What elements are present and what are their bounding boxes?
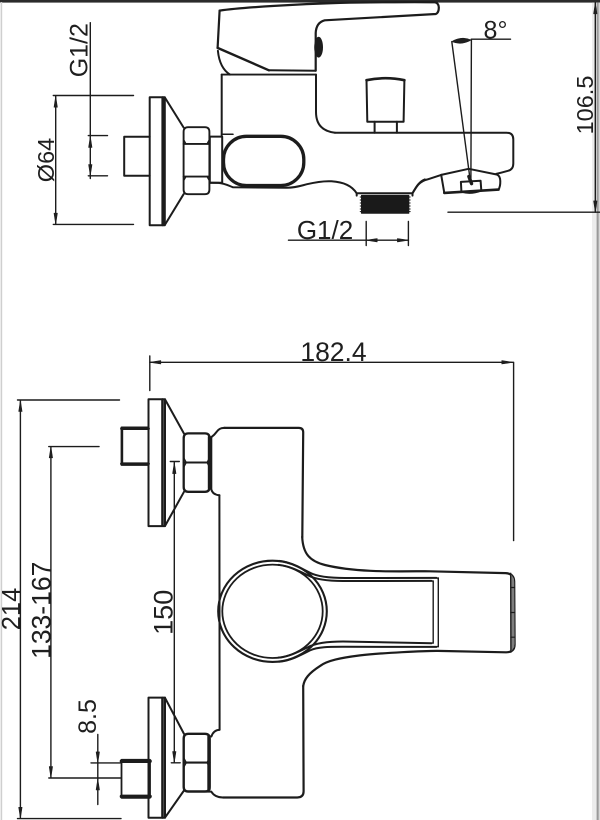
- svg-text:182.4: 182.4: [300, 337, 366, 367]
- svg-text:214: 214: [0, 588, 26, 631]
- svg-text:G1/2: G1/2: [297, 215, 353, 245]
- svg-text:Ø64: Ø64: [33, 138, 59, 182]
- svg-text:150: 150: [149, 590, 179, 635]
- svg-text:8.5: 8.5: [74, 699, 102, 734]
- svg-text:8°: 8°: [484, 16, 508, 44]
- svg-text:133-167: 133-167: [26, 562, 56, 659]
- svg-text:G1/2: G1/2: [66, 23, 94, 77]
- svg-text:106.5: 106.5: [572, 76, 598, 135]
